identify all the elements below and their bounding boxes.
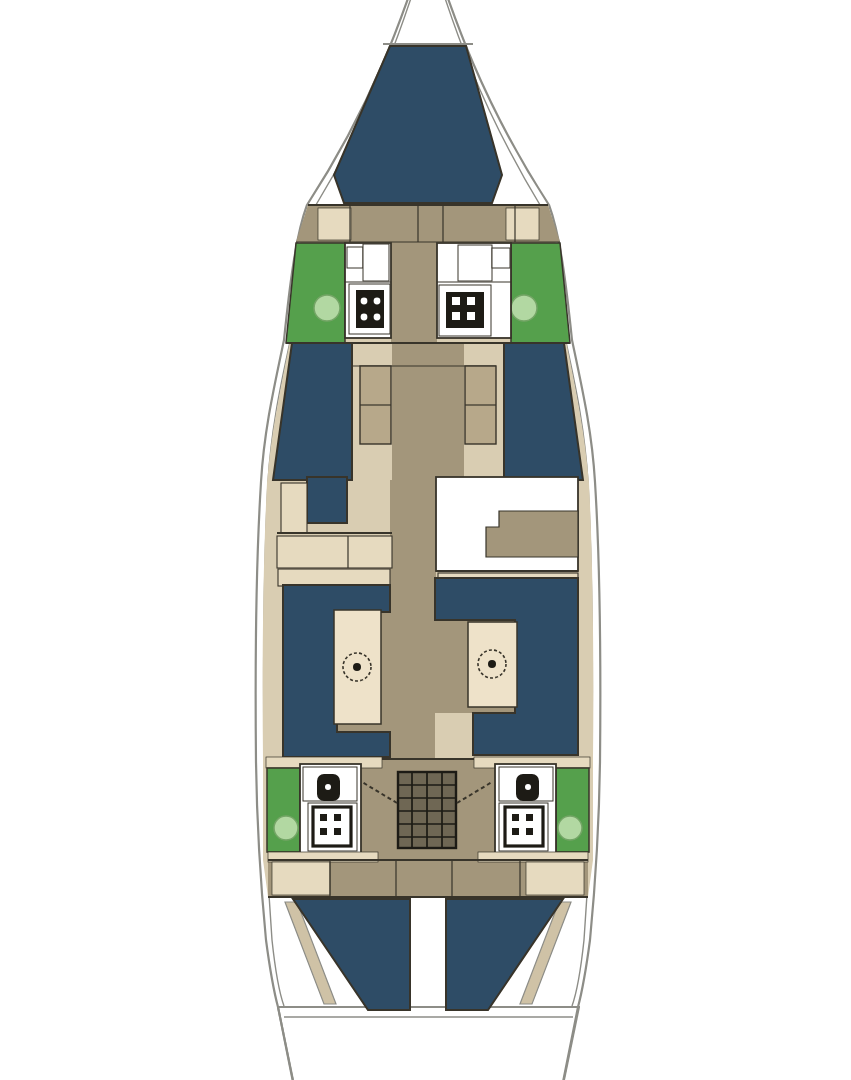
forward-head-starboard-wet-area [511, 243, 570, 343]
forward-heads-corridor [391, 242, 437, 343]
saloon-walkway [390, 595, 435, 758]
vanity-icon [492, 248, 510, 268]
vanity-icon [347, 247, 363, 268]
yacht-floor-plan [0, 0, 851, 1080]
port-sideboard-front [278, 569, 390, 586]
galley-worktop-inset [486, 511, 578, 557]
shower-grate-icon [505, 807, 543, 846]
port-seat-block [307, 477, 347, 523]
port-cabinet-block [281, 483, 307, 533]
shower-grate-icon [446, 292, 484, 328]
forward-head-starboard [437, 243, 570, 343]
forward-cabin-corridor [392, 343, 464, 480]
table-pedestal-dot [353, 663, 361, 671]
toilet-icon [363, 244, 389, 281]
toilet-icon [458, 245, 492, 281]
shower-grate-icon [356, 290, 384, 328]
aft-cabinet-cell-starboard [526, 862, 584, 895]
port-sideboard-top [277, 536, 392, 568]
sink-icon [314, 295, 340, 321]
galley [436, 477, 578, 590]
forward-locker-cell-starboard [506, 208, 539, 240]
shower-grate-icon [313, 807, 351, 846]
forward-head-port-wet-area [286, 243, 345, 343]
sink-icon [558, 816, 582, 840]
toilet-lid-dot [525, 784, 531, 790]
sink-icon [274, 816, 298, 840]
mid-walkway [390, 480, 436, 595]
toilet-lid-dot [325, 784, 331, 790]
floor-plan-page [0, 0, 851, 1080]
aft-cabinet-cell-port [272, 862, 330, 895]
table-pedestal-dot [488, 660, 496, 668]
forward-locker-cell-port [318, 208, 351, 240]
forward-head-port [286, 243, 391, 343]
sink-icon [511, 295, 537, 321]
